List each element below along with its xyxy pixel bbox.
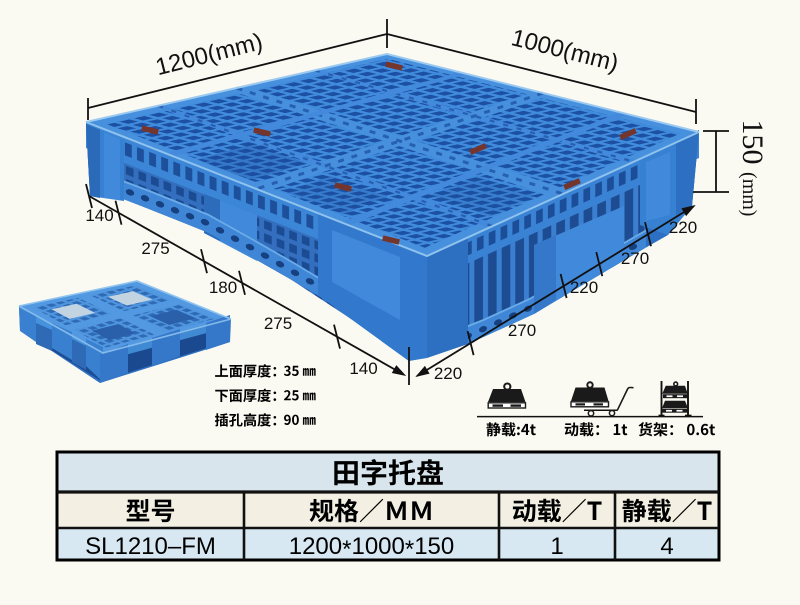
svg-text:4: 4: [660, 533, 673, 560]
svg-text:140: 140: [85, 206, 113, 225]
svg-text:220: 220: [434, 364, 462, 383]
svg-text:270: 270: [508, 321, 536, 340]
svg-text:1200*1000*150: 1200*1000*150: [289, 533, 455, 563]
svg-text:1: 1: [550, 533, 563, 560]
svg-text:275: 275: [264, 314, 292, 333]
svg-text:275: 275: [141, 239, 169, 258]
svg-text:220: 220: [669, 218, 697, 237]
svg-text:SL1210–FM: SL1210–FM: [85, 533, 216, 560]
svg-text:180: 180: [209, 278, 237, 297]
svg-text:220: 220: [570, 278, 598, 297]
svg-text:140: 140: [349, 359, 377, 378]
svg-text:270: 270: [621, 249, 649, 268]
